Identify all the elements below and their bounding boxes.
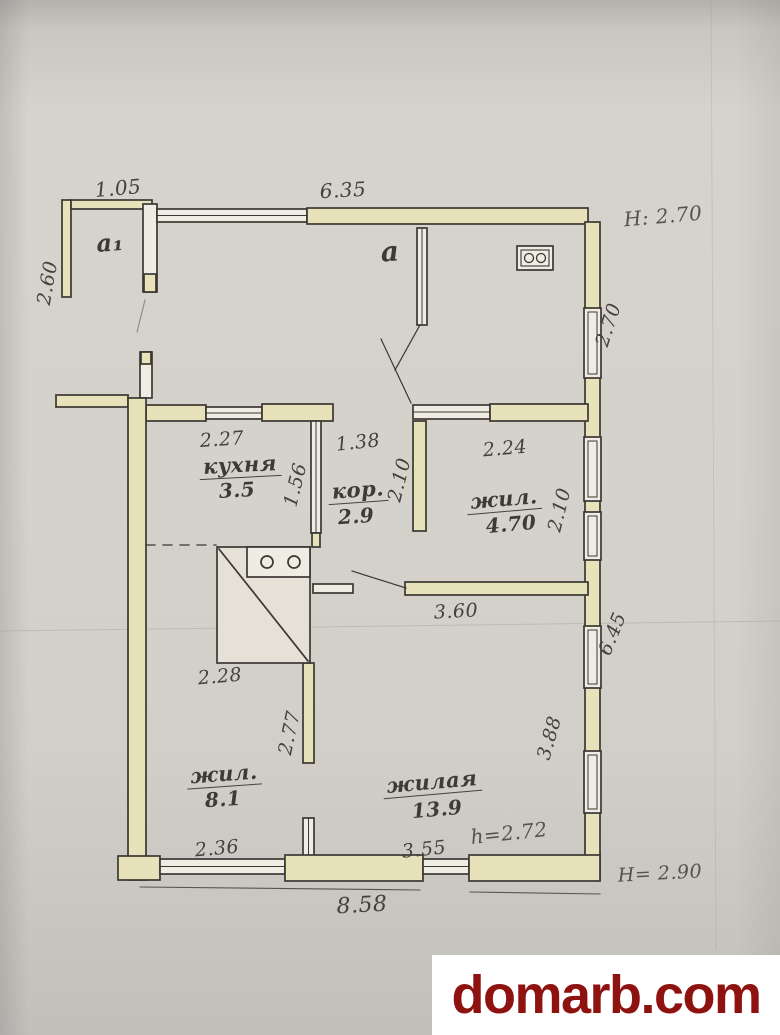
room-139-area: 13.9 — [411, 797, 463, 821]
dimension-label: 6.35 — [319, 179, 367, 201]
dimension-label: 3.60 — [433, 601, 478, 622]
corridor-name: кор. — [327, 477, 389, 505]
dimension-label: 1.05 — [94, 176, 142, 200]
stove-icon — [217, 547, 310, 663]
rooms-partition — [303, 663, 314, 858]
walls — [56, 200, 601, 894]
room-81-area: 8.1 — [204, 788, 242, 810]
veranda-top-wall — [157, 208, 588, 224]
room-470-area: 4.70 — [485, 512, 537, 536]
scanned-floorplan-photo: a₁aкухня3.5кор.2.9жил.4.70жил.8.1жилая13… — [0, 0, 780, 1035]
house-top-wall — [146, 339, 588, 421]
dimension-label: 1.38 — [335, 431, 381, 455]
interior-wall-360 — [313, 571, 588, 595]
kitchen-partition — [311, 421, 321, 547]
veranda-columns — [137, 204, 157, 398]
height-note: H= 2.90 — [617, 862, 702, 885]
dimension-label: 2.24 — [482, 438, 528, 461]
corridor-partition — [413, 421, 426, 531]
kitchen-name: кухня — [199, 452, 282, 480]
cooker-icon — [517, 246, 553, 270]
porch-label: a₁ — [96, 230, 125, 256]
height-note: H: 2.70 — [623, 203, 703, 230]
dimension-label: 2.36 — [194, 838, 240, 861]
watermark-box: domarb.com — [432, 955, 780, 1035]
veranda-partition — [395, 228, 427, 370]
veranda-label: a — [380, 237, 401, 266]
dimension-label: 2.28 — [197, 666, 243, 689]
corridor-area: 2.9 — [337, 505, 375, 527]
west-wall — [56, 395, 146, 880]
dimension-label: 8.58 — [336, 894, 388, 919]
kitchen-area: 3.5 — [218, 479, 255, 501]
dimension-label: 3.55 — [401, 838, 447, 862]
watermark-text: domarb.com — [451, 964, 760, 1026]
south-wall — [118, 855, 600, 894]
dimension-label: 2.27 — [199, 429, 245, 451]
